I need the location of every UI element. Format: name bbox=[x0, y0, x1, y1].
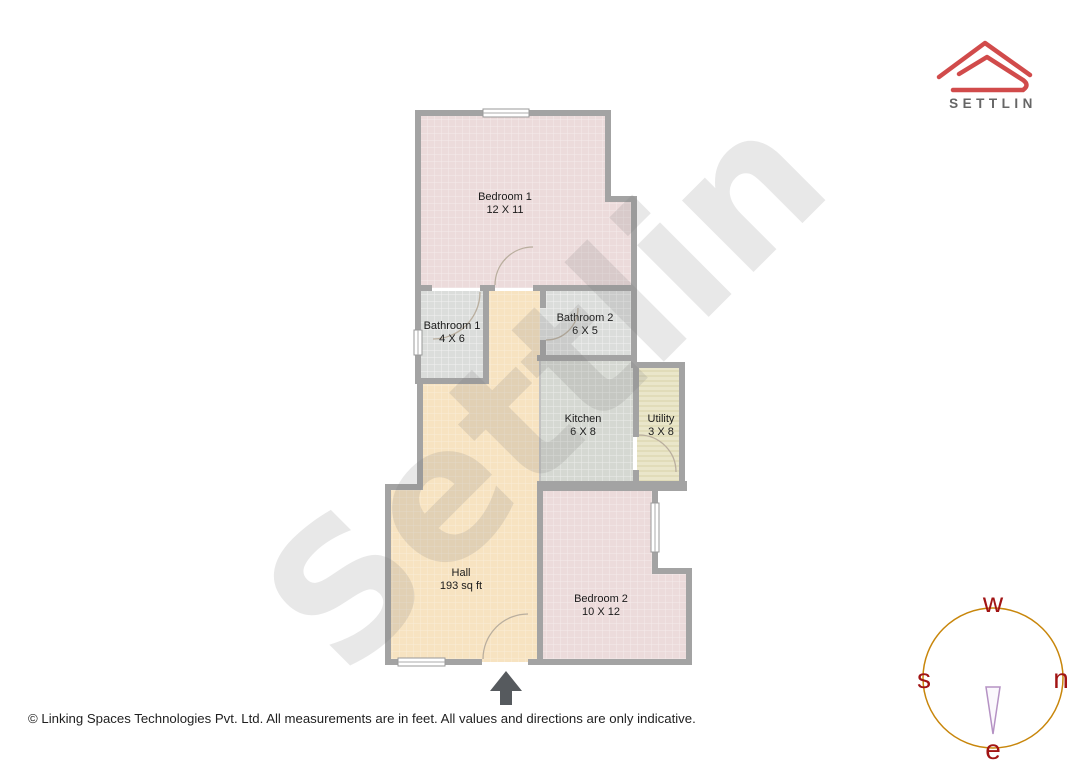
label-bedroom2-name: Bedroom 2 bbox=[574, 593, 628, 605]
label-utility-name: Utility bbox=[648, 413, 675, 425]
label-kitchen-name: Kitchen bbox=[565, 413, 602, 425]
floorplan: Bedroom 1 12 X 11 Bathroom 1 4 X 6 Bathr… bbox=[385, 109, 692, 705]
label-bathroom2-name: Bathroom 2 bbox=[557, 312, 614, 324]
copyright-text: © Linking Spaces Technologies Pvt. Ltd. … bbox=[28, 711, 696, 726]
floorplan-page: SETTLIN bbox=[0, 0, 1080, 764]
label-bathroom2-dims: 6 X 5 bbox=[572, 325, 598, 337]
label-bedroom1-dims: 12 X 11 bbox=[486, 204, 523, 216]
compass-needle-icon bbox=[986, 687, 1000, 734]
label-bedroom1-name: Bedroom 1 bbox=[478, 191, 532, 203]
brand-logo: SETTLIN bbox=[939, 43, 1037, 111]
compass-rose: w s n e bbox=[917, 587, 1069, 764]
floor-hall-mid bbox=[423, 381, 489, 488]
label-hall-dims: 193 sq ft bbox=[440, 580, 482, 592]
label-utility-dims: 3 X 8 bbox=[648, 426, 674, 438]
floorplan-svg: SETTLIN bbox=[0, 0, 1080, 764]
floor-hall-corridor bbox=[489, 291, 540, 488]
entrance-arrow-icon bbox=[490, 671, 522, 705]
label-bathroom1-dims: 4 X 6 bbox=[439, 333, 465, 345]
brand-wordmark: SETTLIN bbox=[949, 96, 1037, 111]
label-kitchen-dims: 6 X 8 bbox=[570, 426, 596, 438]
label-hall-name: Hall bbox=[452, 567, 471, 579]
compass-letter-west: w bbox=[982, 587, 1004, 618]
label-bedroom2-dims: 10 X 12 bbox=[582, 606, 620, 618]
floor-bedroom2-ext bbox=[655, 568, 689, 661]
compass-letter-south: s bbox=[917, 663, 931, 694]
compass-letter-north: n bbox=[1053, 663, 1069, 694]
compass-letter-east: e bbox=[985, 734, 1001, 764]
floor-bedroom2 bbox=[543, 491, 655, 661]
label-bathroom1-name: Bathroom 1 bbox=[424, 320, 481, 332]
floor-bedroom1-ext bbox=[605, 196, 634, 288]
